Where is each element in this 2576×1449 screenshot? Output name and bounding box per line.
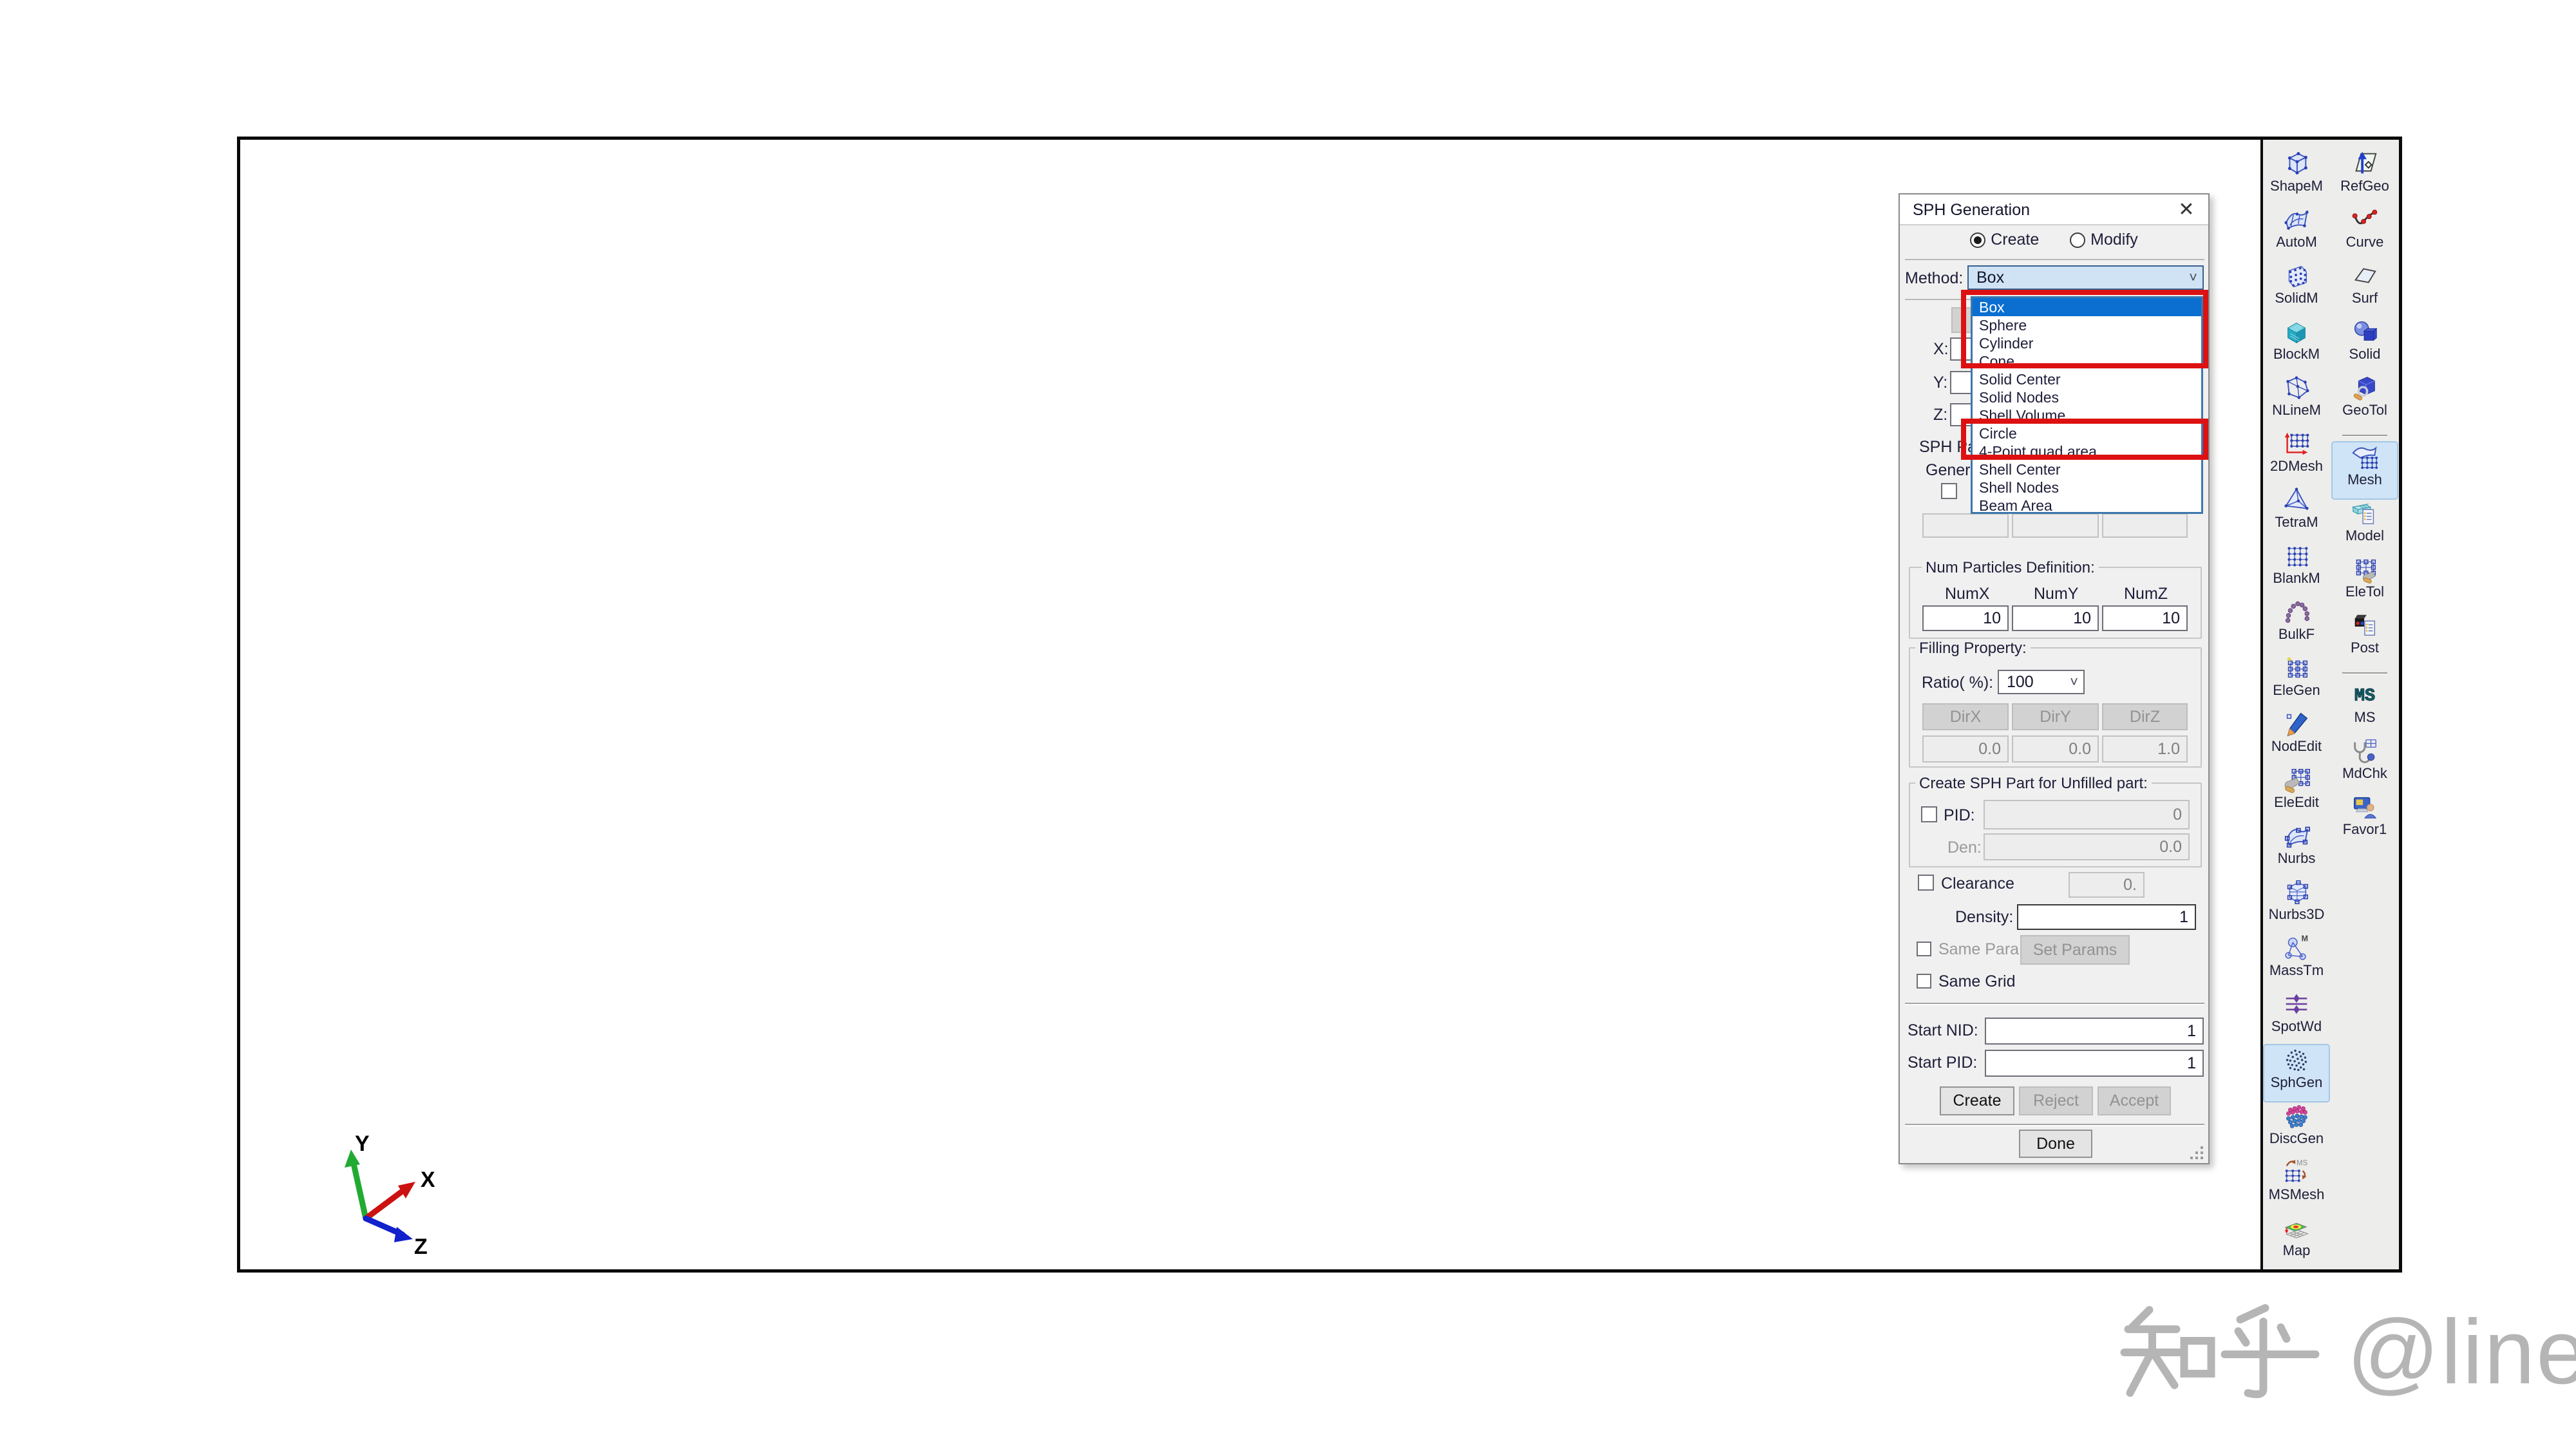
svg-text:MS: MS — [2354, 687, 2375, 706]
bulkf-icon — [2282, 597, 2311, 627]
svg-text:MS: MS — [2297, 1159, 2308, 1167]
toolbar-item-model[interactable]: Model — [2333, 498, 2397, 554]
toolbar-column-2: RefGeoCurveSurfSolidGeoTolMeshModelEleTo… — [2333, 149, 2397, 848]
dialog-title: SPH Generation — [1913, 194, 2030, 225]
refgeo-icon — [2350, 149, 2380, 178]
unfilled-part-title: Create SPH Part for Unfilled part: — [1915, 775, 2152, 793]
numz-label: NumZ — [2124, 585, 2168, 603]
surf-icon — [2350, 261, 2380, 290]
density-label: Density: — [1955, 908, 2013, 927]
dropdown-option-beam-area[interactable]: Beam Area — [1973, 497, 2201, 515]
solid-icon — [2350, 317, 2380, 346]
toolbar-item-tetram[interactable]: TetraM — [2264, 485, 2329, 541]
ratio-label: Ratio( %): — [1922, 674, 1993, 692]
toolbar-item-blankm[interactable]: BlankM — [2264, 541, 2329, 597]
separator — [1905, 1124, 2204, 1126]
coord-z-label: Z: — [1933, 406, 1947, 424]
same-grid-label: Same Grid — [1938, 972, 2015, 991]
numz-field[interactable]: 10 — [2102, 605, 2188, 631]
dropdown-option-solid-nodes[interactable]: Solid Nodes — [1973, 388, 2201, 406]
toolbar-item-label: EleGen — [2273, 683, 2320, 698]
numy-field[interactable]: 10 — [2012, 605, 2099, 631]
zhihu-logo — [2119, 1304, 2325, 1401]
toolbar-item-shapem[interactable]: ShapeM — [2264, 149, 2329, 205]
sphgen-icon — [2282, 1045, 2311, 1075]
nurbs3d-icon — [2282, 877, 2311, 907]
pid-field: 0 — [1984, 800, 2190, 829]
toolbar-item-label: GeoTol — [2342, 402, 2387, 418]
eleedit-icon — [2282, 765, 2311, 795]
start-nid-label: Start NID: — [1908, 1021, 1978, 1040]
autom-icon — [2282, 205, 2311, 234]
post-icon: ✱✱ — [2350, 611, 2380, 640]
hidden-field-3 — [2102, 513, 2188, 538]
toolbar-item-label: RefGeo — [2340, 178, 2389, 194]
den-label: Den: — [1947, 838, 1982, 857]
close-icon[interactable]: ✕ — [2172, 197, 2201, 223]
density-field[interactable]: 1 — [2017, 904, 2196, 930]
toolbar-item-label: ShapeM — [2270, 178, 2323, 194]
toolbar-item-label: NodEdit — [2271, 739, 2322, 754]
same-grid-checkbox[interactable] — [1917, 974, 1931, 989]
toolbar-item-refgeo[interactable]: RefGeo — [2333, 149, 2397, 205]
diry-value-field: 0.0 — [2012, 735, 2099, 762]
hidden-field-1 — [1922, 513, 2009, 538]
dropdown-option-shell-nodes[interactable]: Shell Nodes — [1973, 478, 2201, 497]
set-params-button: Set Params — [2020, 935, 2130, 965]
toolbar-item-eleedit[interactable]: EleEdit — [2264, 765, 2329, 821]
toolbar-item-label: MSMesh — [2269, 1187, 2325, 1202]
toolbar-item-bulkf[interactable]: BulkF — [2264, 597, 2329, 653]
toolbar-item-label: Solid — [2349, 346, 2381, 362]
nurbs-icon — [2282, 821, 2311, 851]
toolbar-item-label: TetraM — [2275, 515, 2318, 530]
dirx-value-field: 0.0 — [1922, 735, 2009, 762]
x-axis-label: X — [421, 1168, 435, 1192]
toolbar-item-elegen[interactable]: EleGen — [2264, 653, 2329, 709]
dirx-button: DirX — [1922, 703, 2009, 730]
chevron-down-icon: ˅ — [2189, 267, 2197, 289]
clearance-label: Clearance — [1941, 875, 2014, 893]
dirz-button: DirZ — [2102, 703, 2188, 730]
solidm-icon — [2282, 261, 2311, 290]
reject-button: Reject — [2019, 1086, 2093, 1115]
toolbar-separator — [2342, 667, 2387, 680]
filling-property-title: Filling Property: — [1915, 639, 2031, 658]
toolbar-item-label: Surf — [2352, 290, 2378, 306]
toolbar-item-curve[interactable]: Curve — [2333, 205, 2397, 261]
toolbar-item-nurbs[interactable]: Nurbs — [2264, 821, 2329, 877]
toolbar-item-nlinem[interactable]: NLineM — [2264, 373, 2329, 429]
elegen-icon — [2282, 653, 2311, 683]
toolbar-column-1: ShapeMAutoMSolidMBlockMNLineM2DMeshTetra… — [2264, 149, 2329, 1269]
method-value: Box — [1976, 267, 2004, 289]
toolbar-item-solid[interactable]: Solid — [2333, 317, 2397, 373]
numx-label: NumX — [1945, 585, 1989, 603]
toolbar-item-geotol[interactable]: GeoTol — [2333, 373, 2397, 429]
toolbar-item-label: AutoM — [2276, 234, 2317, 250]
toolbar-item-label: Post — [2351, 640, 2379, 656]
numy-label: NumY — [2034, 585, 2078, 603]
coord-x-label: X: — [1933, 340, 1949, 359]
masstm-icon: M — [2282, 933, 2311, 963]
toolbar-item-label: SolidM — [2275, 290, 2318, 306]
toolbar-item-label: Curve — [2346, 234, 2384, 250]
dropdown-option-shell-center[interactable]: Shell Center — [1973, 460, 2201, 478]
toolbar-item-spotwd[interactable]: SpotWd — [2264, 989, 2329, 1045]
clearance-field: 0. — [2069, 872, 2145, 898]
curve-icon — [2350, 205, 2380, 234]
toolbar-item-label: Favor1 — [2343, 822, 2387, 837]
toolbar-item-mdchk[interactable]: MdChk — [2333, 736, 2397, 792]
toolbar-item-label: NLineM — [2272, 402, 2321, 418]
toolbar-item-label: 2DMesh — [2270, 459, 2323, 474]
favor1-icon — [2350, 792, 2380, 822]
toolbar-item-discgen[interactable]: DiscGen — [2264, 1101, 2329, 1157]
z-axis-arrow — [394, 1227, 413, 1242]
toolbar-item-label: EleTol — [2345, 584, 2384, 600]
spotwd-icon — [2282, 989, 2311, 1019]
toolbar-item-autom[interactable]: AutoM — [2264, 205, 2329, 261]
resize-grip[interactable] — [2189, 1145, 2203, 1159]
toolbar-item-label: Nurbs — [2278, 851, 2316, 866]
method-label: Method: — [1905, 269, 1963, 288]
toolbar-item-label: BlockM — [2273, 346, 2320, 362]
same-para-checkbox[interactable] — [1917, 942, 1931, 956]
separator — [1905, 1003, 2204, 1005]
toolbar-item-label: BulkF — [2278, 627, 2315, 642]
toolbar-item-ms[interactable]: MSMS — [2333, 680, 2397, 736]
toolbar-item-blockm[interactable]: BlockM — [2264, 317, 2329, 373]
model-icon — [2350, 498, 2380, 528]
mesh2d-icon — [2282, 429, 2311, 459]
diry-button: DirY — [2012, 703, 2099, 730]
toolbar-item-label: MassTm — [2269, 963, 2324, 978]
discgen-icon — [2282, 1101, 2311, 1131]
geotol-icon — [2350, 373, 2380, 402]
radio-modify-label: Modify — [2090, 231, 2138, 249]
toolbar-item-label: BlankM — [2273, 571, 2320, 586]
toolbar-item-label: Model — [2345, 528, 2384, 544]
toolbar-item-label: SphGen — [2271, 1075, 2323, 1090]
toolbar-item-label: Map — [2283, 1243, 2311, 1258]
toolbar-item-label: SpotWd — [2271, 1019, 2322, 1034]
toolbar-item-map[interactable]: Map — [2264, 1213, 2329, 1269]
axis-triad: Y X Z — [330, 1132, 453, 1260]
dropdown-option-solid-center[interactable]: Solid Center — [1973, 370, 2201, 388]
toolbar-item-label: Nurbs3D — [2269, 907, 2325, 922]
done-button[interactable]: Done — [2019, 1130, 2092, 1158]
ratio-combobox[interactable]: 100 ˅ — [1998, 670, 2085, 694]
clearance-checkbox[interactable] — [1918, 875, 1934, 891]
toolbar-item-nurbs3d[interactable]: Nurbs3D — [2264, 877, 2329, 933]
blockm-icon — [2282, 317, 2311, 346]
svg-text:✱: ✱ — [2360, 620, 2364, 627]
radio-create[interactable]: Create — [1970, 231, 2039, 249]
map-icon — [2282, 1213, 2311, 1243]
toolbar-item-2dmesh[interactable]: 2DMesh — [2264, 429, 2329, 485]
toolbar-item-mesh[interactable]: Mesh — [2333, 442, 2397, 498]
toolbar-item-label: MdChk — [2342, 766, 2387, 781]
create-button[interactable]: Create — [1940, 1086, 2014, 1115]
right-toolbar: ShapeMAutoMSolidMBlockMNLineM2DMeshTetra… — [2260, 140, 2399, 1269]
annotation-red-box-2 — [1961, 419, 2208, 460]
coord-y-label: Y: — [1933, 374, 1947, 392]
toolbar-item-msmesh[interactable]: MSMSMesh — [2264, 1157, 2329, 1213]
radio-modify-icon — [2070, 232, 2085, 248]
annotation-red-box-1 — [1961, 290, 2208, 368]
dialog-titlebar[interactable]: SPH Generation ✕ — [1900, 194, 2208, 225]
shapem-icon — [2282, 149, 2311, 178]
same-para-label: Same Para — [1938, 940, 2019, 959]
svg-text:M: M — [2302, 934, 2308, 943]
method-combobox[interactable]: Box ˅ — [1967, 265, 2204, 290]
blankm-icon — [2282, 541, 2311, 571]
start-nid-field[interactable]: 1 — [1985, 1018, 2204, 1045]
chevron-down-icon: ˅ — [2070, 671, 2078, 693]
page: Y X Z ShapeMAutoMSolidMBlockMNLineM2DMes… — [0, 0, 2576, 1449]
toolbar-item-masstm[interactable]: MMassTm — [2264, 933, 2329, 989]
numx-field[interactable]: 10 — [1922, 605, 2009, 631]
ms-icon: MS — [2350, 680, 2380, 710]
radio-create-label: Create — [1991, 231, 2039, 249]
mesh-icon — [2350, 442, 2380, 472]
nlinem-icon — [2282, 373, 2311, 402]
toolbar-separator — [2342, 429, 2387, 442]
eletol-icon — [2350, 554, 2380, 584]
general-group-label-clipped: Gener — [1926, 461, 1970, 480]
toolbar-item-solidm[interactable]: SolidM — [2264, 261, 2329, 317]
den-field: 0.0 — [1984, 833, 2190, 860]
hidden-field-2 — [2012, 513, 2099, 538]
z-axis-label: Z — [414, 1235, 428, 1259]
radio-create-icon — [1970, 232, 1985, 248]
watermark-handle: @line — [2347, 1304, 2576, 1401]
watermark: @line — [2119, 1304, 2576, 1401]
toolbar-item-eletol[interactable]: EleTol — [2333, 554, 2397, 611]
msmesh-icon: MS — [2282, 1157, 2311, 1187]
num-particles-title: Num Particles Definition: — [1922, 559, 2099, 577]
toolbar-item-sphgen[interactable]: SphGen — [2264, 1045, 2329, 1101]
pid-label: PID: — [1944, 806, 1975, 825]
sph-generation-dialog: SPH Generation ✕ Create Modify Method: B… — [1899, 193, 2210, 1164]
toolbar-item-nodedit[interactable]: NodEdit — [2264, 709, 2329, 765]
nodedit-icon — [2282, 709, 2311, 739]
separator — [1905, 259, 2204, 260]
toolbar-item-label: EleEdit — [2274, 795, 2319, 810]
mode-radio-row: Create Modify — [1900, 231, 2208, 249]
mdchk-icon — [2350, 736, 2380, 766]
pid-checkbox[interactable] — [1921, 806, 1937, 822]
start-pid-label: Start PID: — [1908, 1054, 1977, 1072]
start-pid-field[interactable]: 1 — [1985, 1050, 2204, 1077]
radio-modify[interactable]: Modify — [2070, 231, 2138, 249]
toolbar-item-post[interactable]: ✱✱Post — [2333, 611, 2397, 667]
toolbar-item-label: DiscGen — [2269, 1131, 2324, 1146]
toolbar-item-label: MS — [2354, 710, 2376, 725]
toolbar-item-surf[interactable]: Surf — [2333, 261, 2397, 317]
hidden-checkbox[interactable] — [1941, 483, 1957, 499]
y-axis-label: Y — [355, 1132, 370, 1156]
dirz-value-field: 1.0 — [2102, 735, 2188, 762]
ratio-value: 100 — [2007, 671, 2034, 693]
toolbar-item-label: Mesh — [2347, 472, 2382, 488]
accept-button: Accept — [2098, 1086, 2171, 1115]
tetram-icon — [2282, 485, 2311, 515]
toolbar-item-favor1[interactable]: Favor1 — [2333, 792, 2397, 848]
